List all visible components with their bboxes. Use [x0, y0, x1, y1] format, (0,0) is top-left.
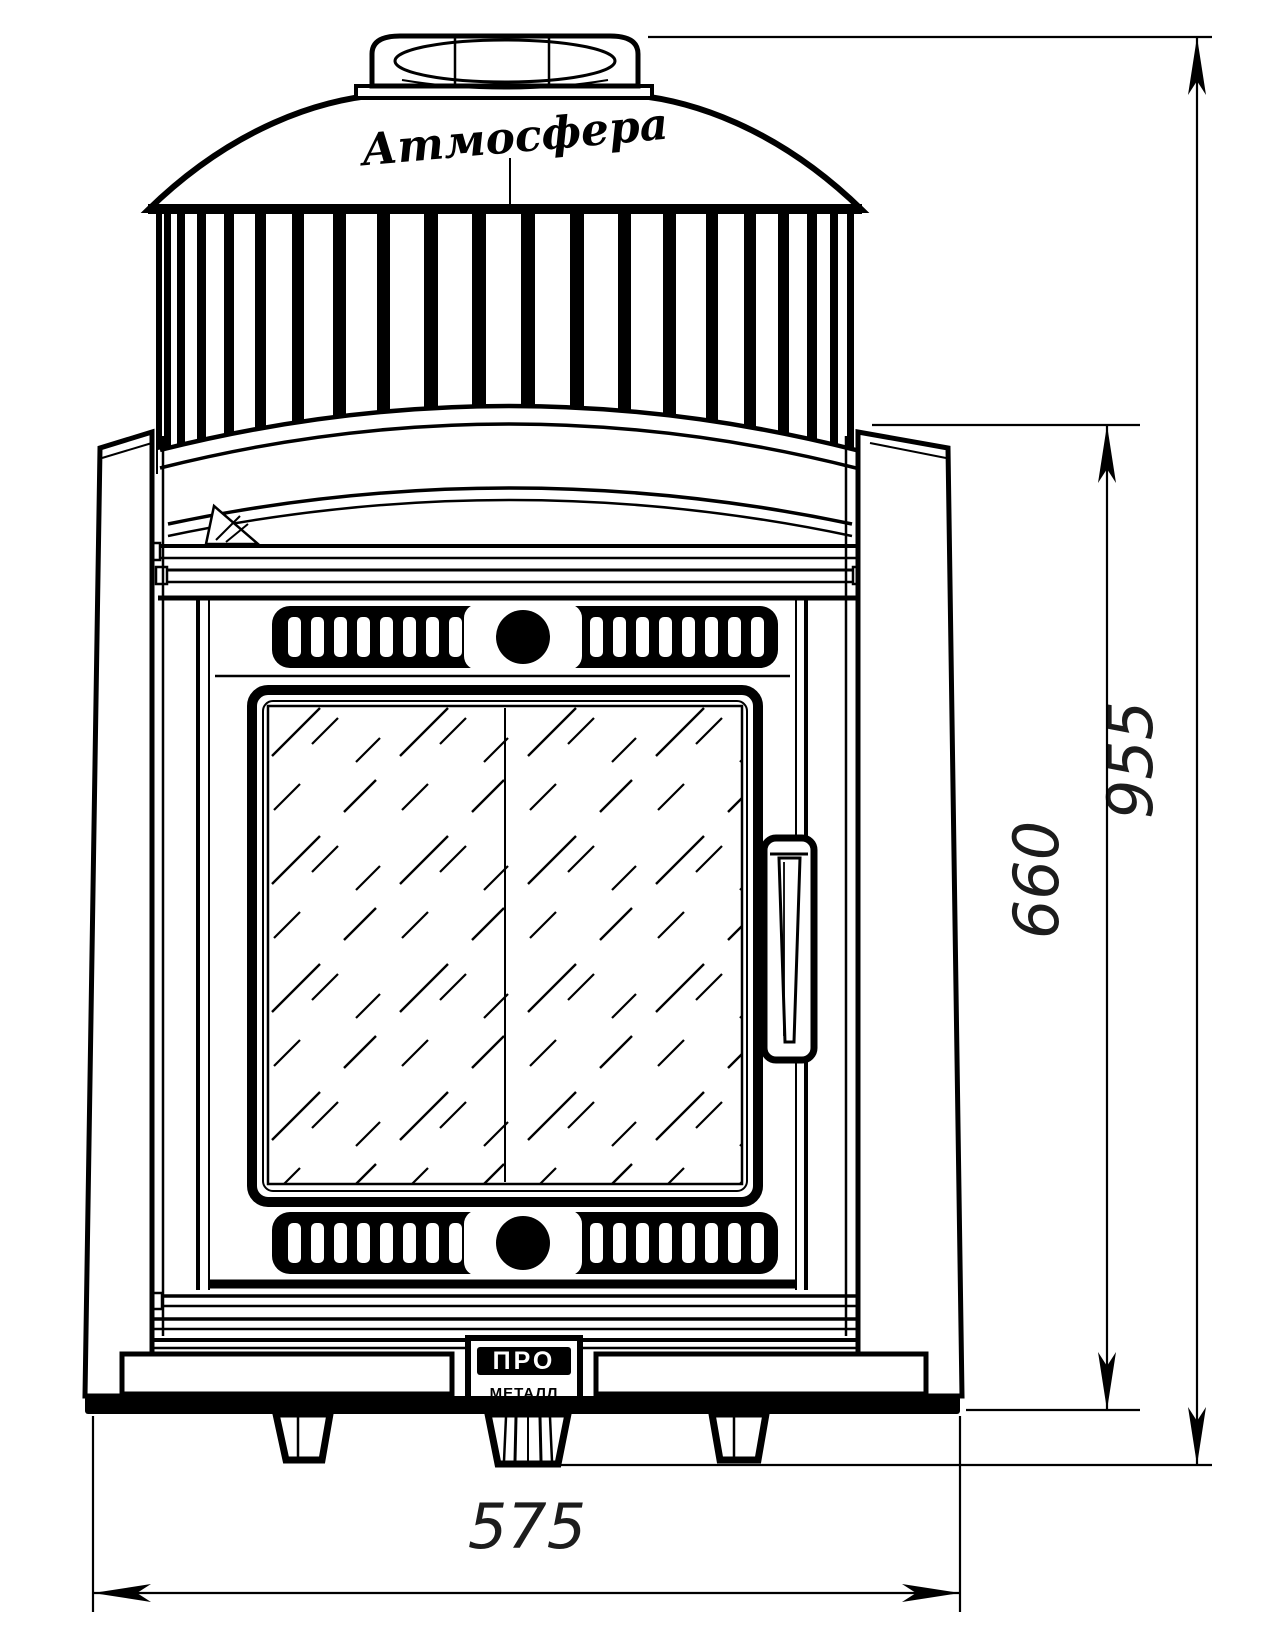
slat: [156, 212, 162, 474]
top-vent-row: [272, 604, 778, 670]
dome-bottom-rim: [148, 204, 862, 214]
vent-slot: [311, 617, 324, 657]
vent-slot: [426, 617, 439, 657]
foot-center-hatch: [540, 1417, 541, 1461]
vent-slot: [357, 1223, 370, 1263]
trim-end-cap: [156, 567, 167, 584]
vent-knob: [496, 610, 550, 664]
collar-flange: [372, 36, 638, 86]
vent-slot: [659, 617, 672, 657]
vent-slot: [751, 1223, 764, 1263]
vent-slot: [590, 617, 603, 657]
vent-slot: [751, 617, 764, 657]
vent-slot: [613, 1223, 626, 1263]
vent-slot: [636, 1223, 649, 1263]
slat: [830, 212, 838, 474]
slat: [807, 212, 817, 474]
slat: [197, 212, 206, 474]
stove-door: [252, 690, 758, 1202]
vent-slot: [728, 1223, 741, 1263]
vent-knob: [496, 1216, 550, 1270]
vent-slot: [334, 1223, 347, 1263]
vent-slot: [613, 617, 626, 657]
side-panel-right-outline: [858, 432, 962, 1396]
vent-slot: [380, 1223, 393, 1263]
slat: [164, 212, 171, 474]
vent-slot: [449, 617, 462, 657]
vent-slot: [682, 1223, 695, 1263]
vent-slot: [288, 617, 301, 657]
vent-slot: [357, 617, 370, 657]
vent-slot: [659, 1223, 672, 1263]
bottom-vent-row: [272, 1210, 778, 1276]
vent-slot: [590, 1223, 603, 1263]
slat: [847, 212, 854, 474]
vent-slot: [449, 1223, 462, 1263]
vent-slot: [311, 1223, 324, 1263]
foot-left: [276, 1414, 330, 1460]
slat: [177, 212, 185, 474]
logo-pro-text: ПРО: [493, 1347, 556, 1375]
vent-slot: [403, 1223, 416, 1263]
plate-panel-left: [122, 1354, 452, 1394]
vent-slot: [705, 617, 718, 657]
foot-center-hatch: [515, 1417, 516, 1461]
door-handle: [764, 838, 814, 1060]
plate-panel-right: [596, 1354, 926, 1394]
vent-slot: [705, 1223, 718, 1263]
dim-label-955: 955: [1094, 701, 1167, 819]
side-panel-left: [85, 432, 163, 1396]
vent-slot: [728, 617, 741, 657]
vent-slot: [426, 1223, 439, 1263]
dim-label-575: 575: [468, 1490, 586, 1563]
stove-technical-drawing: Атмосфера: [0, 0, 1280, 1647]
vent-slot: [636, 617, 649, 657]
vent-slot: [682, 617, 695, 657]
vent-slot: [334, 617, 347, 657]
vent-slot: [288, 1223, 301, 1263]
dim-label-660: 660: [1000, 821, 1073, 939]
foot-right: [712, 1414, 766, 1460]
chimney-collar: [356, 36, 652, 98]
vent-slot: [380, 617, 393, 657]
side-panel-right: [846, 432, 962, 1396]
vent-slot: [403, 617, 416, 657]
